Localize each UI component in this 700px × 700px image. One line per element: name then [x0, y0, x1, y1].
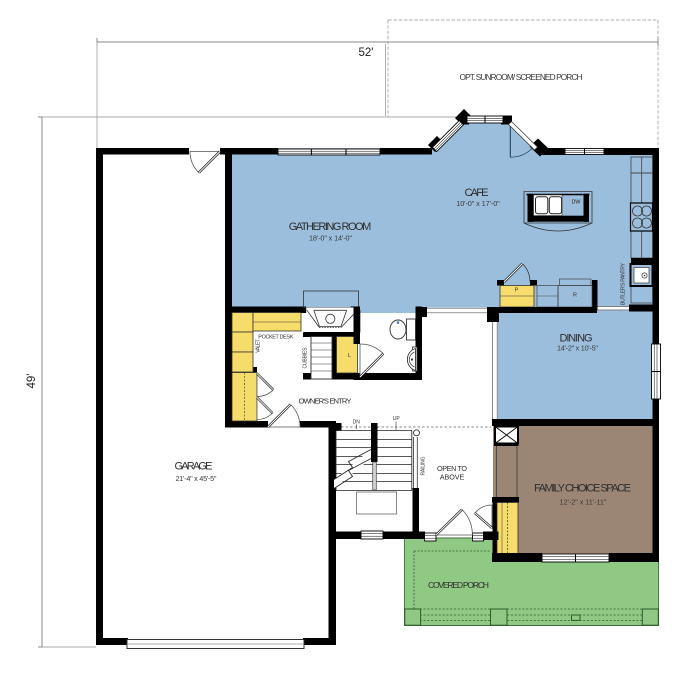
svg-text:18'-0" x 14'-0": 18'-0" x 14'-0" — [309, 234, 352, 243]
svg-text:OPT. SUNROOM/ SCREENED PORCH: OPT. SUNROOM/ SCREENED PORCH — [460, 72, 583, 82]
svg-text:CAFE: CAFE — [465, 187, 489, 199]
svg-text:49': 49' — [26, 374, 38, 389]
svg-text:OWNER'S ENTRY: OWNER'S ENTRY — [299, 397, 352, 406]
svg-text:COVERED PORCH: COVERED PORCH — [428, 580, 489, 590]
svg-text:ABOVE: ABOVE — [440, 473, 465, 482]
svg-text:21'-4" x 45'-5": 21'-4" x 45'-5" — [176, 474, 217, 483]
svg-text:DW: DW — [572, 200, 581, 206]
svg-text:RAILING: RAILING — [421, 456, 427, 475]
svg-text:FAMILY CHOICE SPACE: FAMILY CHOICE SPACE — [534, 483, 631, 495]
svg-text:BUTLER'S PANTRY: BUTLER'S PANTRY — [621, 262, 627, 305]
svg-text:GATHERING ROOM: GATHERING ROOM — [289, 221, 372, 233]
svg-text:10'-0" x 17'-0": 10'-0" x 17'-0" — [456, 199, 500, 208]
svg-text:GARAGE: GARAGE — [175, 461, 213, 473]
svg-text:P: P — [515, 288, 519, 294]
svg-text:L: L — [348, 353, 351, 359]
svg-text:VALET: VALET — [256, 339, 262, 353]
svg-text:UP: UP — [393, 416, 401, 422]
svg-text:14'-2" x 10'-5": 14'-2" x 10'-5" — [557, 344, 598, 353]
svg-text:POCKET DESK: POCKET DESK — [258, 335, 293, 341]
svg-text:R: R — [573, 293, 577, 299]
svg-text:12'-2" x 11'-11": 12'-2" x 11'-11" — [560, 498, 607, 507]
svg-text:52': 52' — [359, 47, 374, 59]
svg-text:CUBBIES: CUBBIES — [303, 347, 309, 369]
